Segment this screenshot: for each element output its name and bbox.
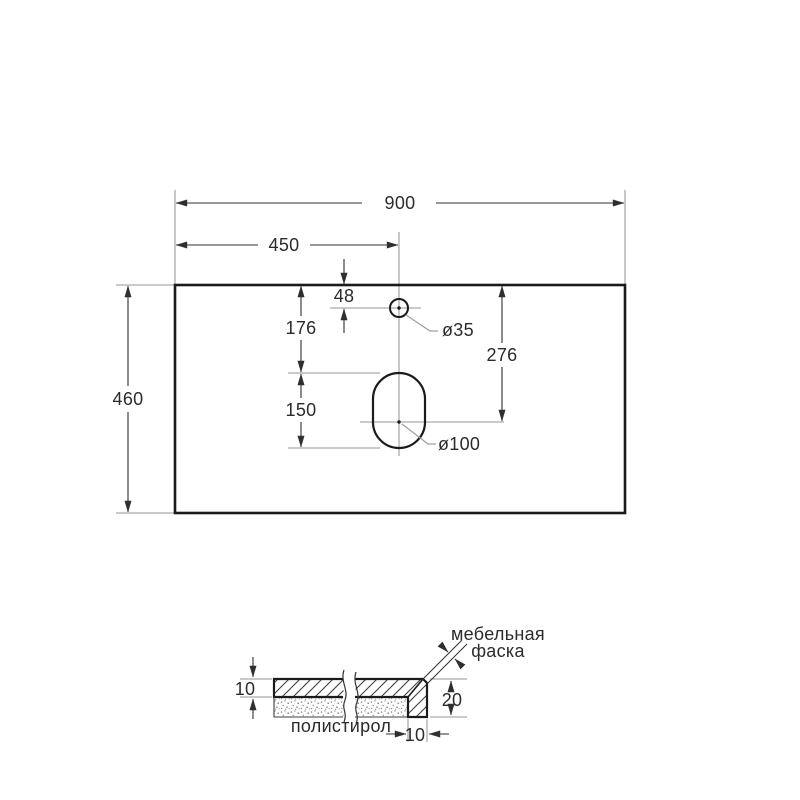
faucet-hole-center-dot: [397, 306, 400, 309]
drain-leader-line: [402, 424, 436, 444]
section-view: 10 20 10 мебельная фаска полистирол: [235, 624, 545, 745]
dim-arrow: [441, 645, 448, 652]
chamfer-extension-lines: [422, 640, 467, 684]
dim-center-offset-label: 450: [269, 235, 300, 255]
faucet-leader-line: [406, 315, 438, 331]
filler-stipple-area: [274, 697, 408, 717]
filler-label: полистирол: [291, 716, 391, 736]
edge-width-label: 10: [405, 725, 426, 745]
top-view: 900 450 460 48 176 150 276 ø35 ø100: [113, 190, 625, 513]
dim-drain-center-label: 276: [487, 345, 518, 365]
dim-depth-label: 460: [113, 389, 144, 409]
drain-center-dot: [397, 420, 400, 423]
countertop-outline: [175, 285, 625, 513]
drawing-canvas: 900 450 460 48 176 150 276 ø35 ø100: [0, 0, 800, 800]
chamfer-label-line2: фаска: [471, 641, 525, 661]
drain-diameter-label: ø100: [438, 434, 480, 454]
dim-faucet-to-slot-label: 176: [286, 318, 317, 338]
dim-faucet-offset-label: 48: [334, 286, 355, 306]
edge-height-label: 20: [442, 690, 463, 710]
dim-width-label: 900: [385, 193, 416, 213]
faucet-diameter-label: ø35: [442, 320, 474, 340]
dimension-lines: [128, 203, 624, 512]
construction-lines: [116, 190, 625, 513]
dim-arrow: [455, 659, 462, 666]
technical-drawing: 900 450 460 48 176 150 276 ø35 ø100: [0, 0, 800, 800]
dim-slot-length-label: 150: [286, 400, 317, 420]
panel-thickness-label: 10: [235, 679, 256, 699]
